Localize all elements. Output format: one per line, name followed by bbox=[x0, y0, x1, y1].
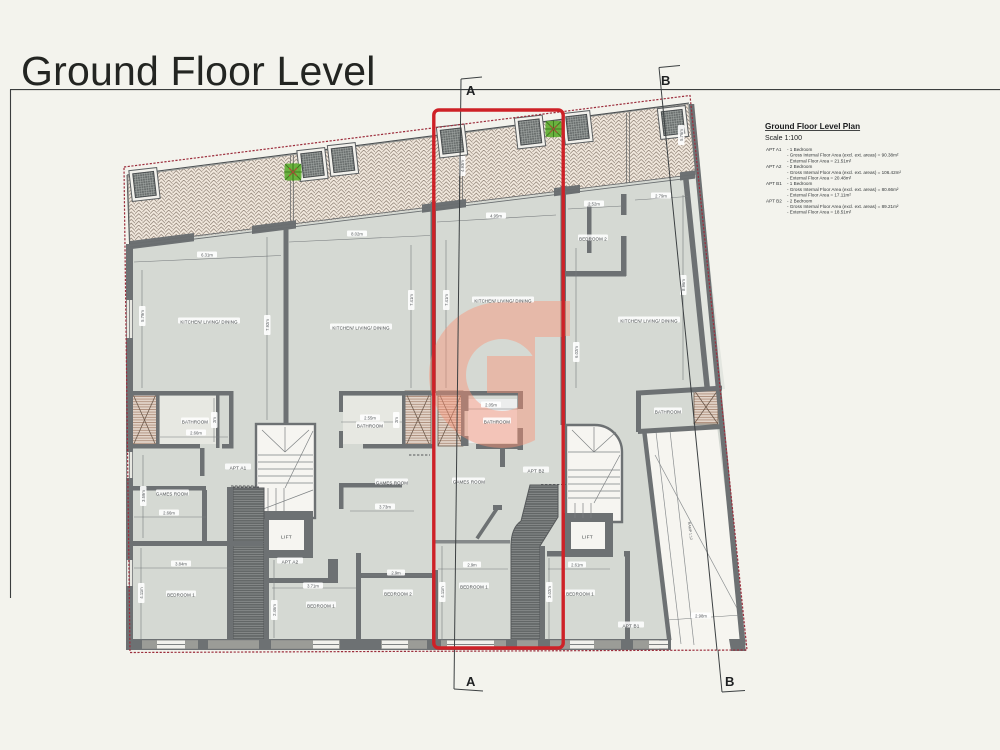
svg-text:BEDROOM 2: BEDROOM 2 bbox=[579, 237, 607, 242]
svg-text:3.71m: 3.71m bbox=[307, 584, 319, 589]
svg-text:GAMES ROOM: GAMES ROOM bbox=[453, 480, 485, 485]
svg-text:- External Floor Area = 18.51m: - External Floor Area = 18.51m² bbox=[787, 210, 852, 215]
svg-text:2.61m: 2.61m bbox=[571, 563, 583, 568]
svg-text:BEDROOM 1: BEDROOM 1 bbox=[307, 604, 335, 609]
svg-text:2.79m: 2.79m bbox=[655, 194, 667, 199]
svg-text:- 1 Bedroom: - 1 Bedroom bbox=[787, 147, 812, 152]
svg-text:3.73m: 3.73m bbox=[379, 505, 391, 510]
svg-text:- External Floor Area = 17.11m: - External Floor Area = 17.11m² bbox=[787, 193, 851, 198]
svg-text:5.79m: 5.79m bbox=[140, 310, 145, 322]
svg-text:- Gross Internal Floor Area (e: - Gross Internal Floor Area (excl. ext. … bbox=[787, 187, 899, 192]
svg-text:2.9m: 2.9m bbox=[467, 563, 477, 568]
svg-text:6.31m: 6.31m bbox=[201, 253, 213, 258]
svg-text:APT A1: APT A1 bbox=[230, 466, 247, 471]
svg-text:LIFT: LIFT bbox=[582, 535, 593, 541]
svg-text:2.05m: 2.05m bbox=[485, 403, 497, 408]
svg-text:3.02m: 3.02m bbox=[547, 586, 552, 598]
svg-text:7.92m: 7.92m bbox=[265, 319, 270, 331]
svg-text:7.41m: 7.41m bbox=[409, 294, 414, 306]
svg-text:BATHROOM: BATHROOM bbox=[182, 420, 208, 425]
svg-text:7.41m: 7.41m bbox=[444, 294, 449, 306]
svg-text:- Gross Internal Floor Area (e: - Gross Internal Floor Area (excl. ext. … bbox=[787, 170, 901, 175]
svg-text:Scale 1:100: Scale 1:100 bbox=[765, 135, 802, 142]
svg-text:2.66m: 2.66m bbox=[190, 431, 202, 436]
svg-text:APT B2: APT B2 bbox=[766, 198, 782, 203]
svg-text:KITCHEN/ LIVING/ DINING: KITCHEN/ LIVING/ DINING bbox=[332, 326, 390, 331]
svg-text:BATHROOM: BATHROOM bbox=[655, 410, 681, 415]
svg-text:BEDROOM 2: BEDROOM 2 bbox=[384, 592, 412, 597]
svg-text:LIFT: LIFT bbox=[281, 535, 292, 541]
svg-text:APT A2: APT A2 bbox=[766, 164, 782, 169]
svg-text:- Gross Internal Floor Area (e: - Gross Internal Floor Area (excl. ext. … bbox=[787, 153, 899, 158]
svg-text:- 2 Bedroom: - 2 Bedroom bbox=[787, 198, 812, 203]
svg-text:2.52m: 2.52m bbox=[588, 202, 600, 207]
svg-text:KITCHEN/ LIVING/ DINING: KITCHEN/ LIVING/ DINING bbox=[620, 319, 678, 324]
svg-text:- External Floor Area = 21.51m: - External Floor Area = 21.51m² bbox=[787, 158, 852, 163]
svg-text:BEDROOM 1: BEDROOM 1 bbox=[566, 592, 594, 597]
svg-text:APT A2: APT A2 bbox=[282, 560, 299, 565]
svg-text:APT B1: APT B1 bbox=[766, 181, 782, 186]
svg-text:Ground Floor Level: Ground Floor Level bbox=[21, 48, 376, 94]
svg-text:- External Floor Area = 20.48m: - External Floor Area = 20.48m² bbox=[787, 176, 852, 181]
svg-text:4.93m: 4.93m bbox=[460, 160, 465, 172]
svg-text:KITCHEN/ LIVING/ DINING: KITCHEN/ LIVING/ DINING bbox=[474, 299, 532, 304]
svg-text:8.96m: 8.96m bbox=[681, 279, 686, 291]
svg-text:2.98m: 2.98m bbox=[695, 614, 707, 619]
svg-text:BATHROOM: BATHROOM bbox=[484, 420, 510, 425]
svg-text:Ground Floor Level Plan: Ground Floor Level Plan bbox=[765, 122, 860, 131]
svg-text:BEDROOM 1: BEDROOM 1 bbox=[460, 585, 488, 590]
svg-text:2.9m: 2.9m bbox=[391, 571, 401, 576]
svg-text:2.66m: 2.66m bbox=[163, 511, 175, 516]
svg-text:A: A bbox=[466, 674, 476, 689]
svg-text:- 2 Bedroom: - 2 Bedroom bbox=[787, 164, 812, 169]
svg-text:APT B1: APT B1 bbox=[623, 624, 640, 629]
svg-text:APT A1: APT A1 bbox=[766, 147, 782, 152]
svg-text:BATHROOM: BATHROOM bbox=[357, 424, 383, 429]
svg-text:- 1 Bedroom: - 1 Bedroom bbox=[787, 181, 812, 186]
svg-text:B: B bbox=[725, 674, 734, 689]
svg-text:A: A bbox=[466, 83, 476, 98]
svg-text:KITCHEN/ LIVING/ DINING: KITCHEN/ LIVING/ DINING bbox=[180, 320, 238, 325]
svg-text:- Gross Internal Floor Area (e: - Gross Internal Floor Area (excl. ext. … bbox=[787, 204, 899, 209]
svg-text:6.02m: 6.02m bbox=[574, 346, 579, 358]
svg-text:GAMES ROOM: GAMES ROOM bbox=[156, 492, 188, 497]
svg-text:B: B bbox=[661, 73, 670, 88]
svg-text:APT B2: APT B2 bbox=[528, 469, 545, 474]
svg-text:2m: 2m bbox=[212, 417, 217, 423]
svg-text:GAMES ROOM: GAMES ROOM bbox=[376, 481, 408, 486]
svg-text:2.46m: 2.46m bbox=[272, 604, 277, 616]
svg-text:5.76m: 5.76m bbox=[679, 129, 684, 141]
svg-text:2m: 2m bbox=[394, 417, 399, 423]
svg-text:4.11m: 4.11m bbox=[139, 587, 144, 599]
svg-text:4.11m: 4.11m bbox=[440, 586, 445, 598]
svg-text:3.59m: 3.59m bbox=[141, 490, 146, 502]
svg-text:BEDROOM 1: BEDROOM 1 bbox=[167, 593, 195, 598]
svg-text:8.02m: 8.02m bbox=[351, 232, 363, 237]
svg-text:4.95m: 4.95m bbox=[490, 214, 502, 219]
svg-text:2.55m: 2.55m bbox=[364, 416, 376, 421]
svg-text:3.84m: 3.84m bbox=[175, 562, 187, 567]
